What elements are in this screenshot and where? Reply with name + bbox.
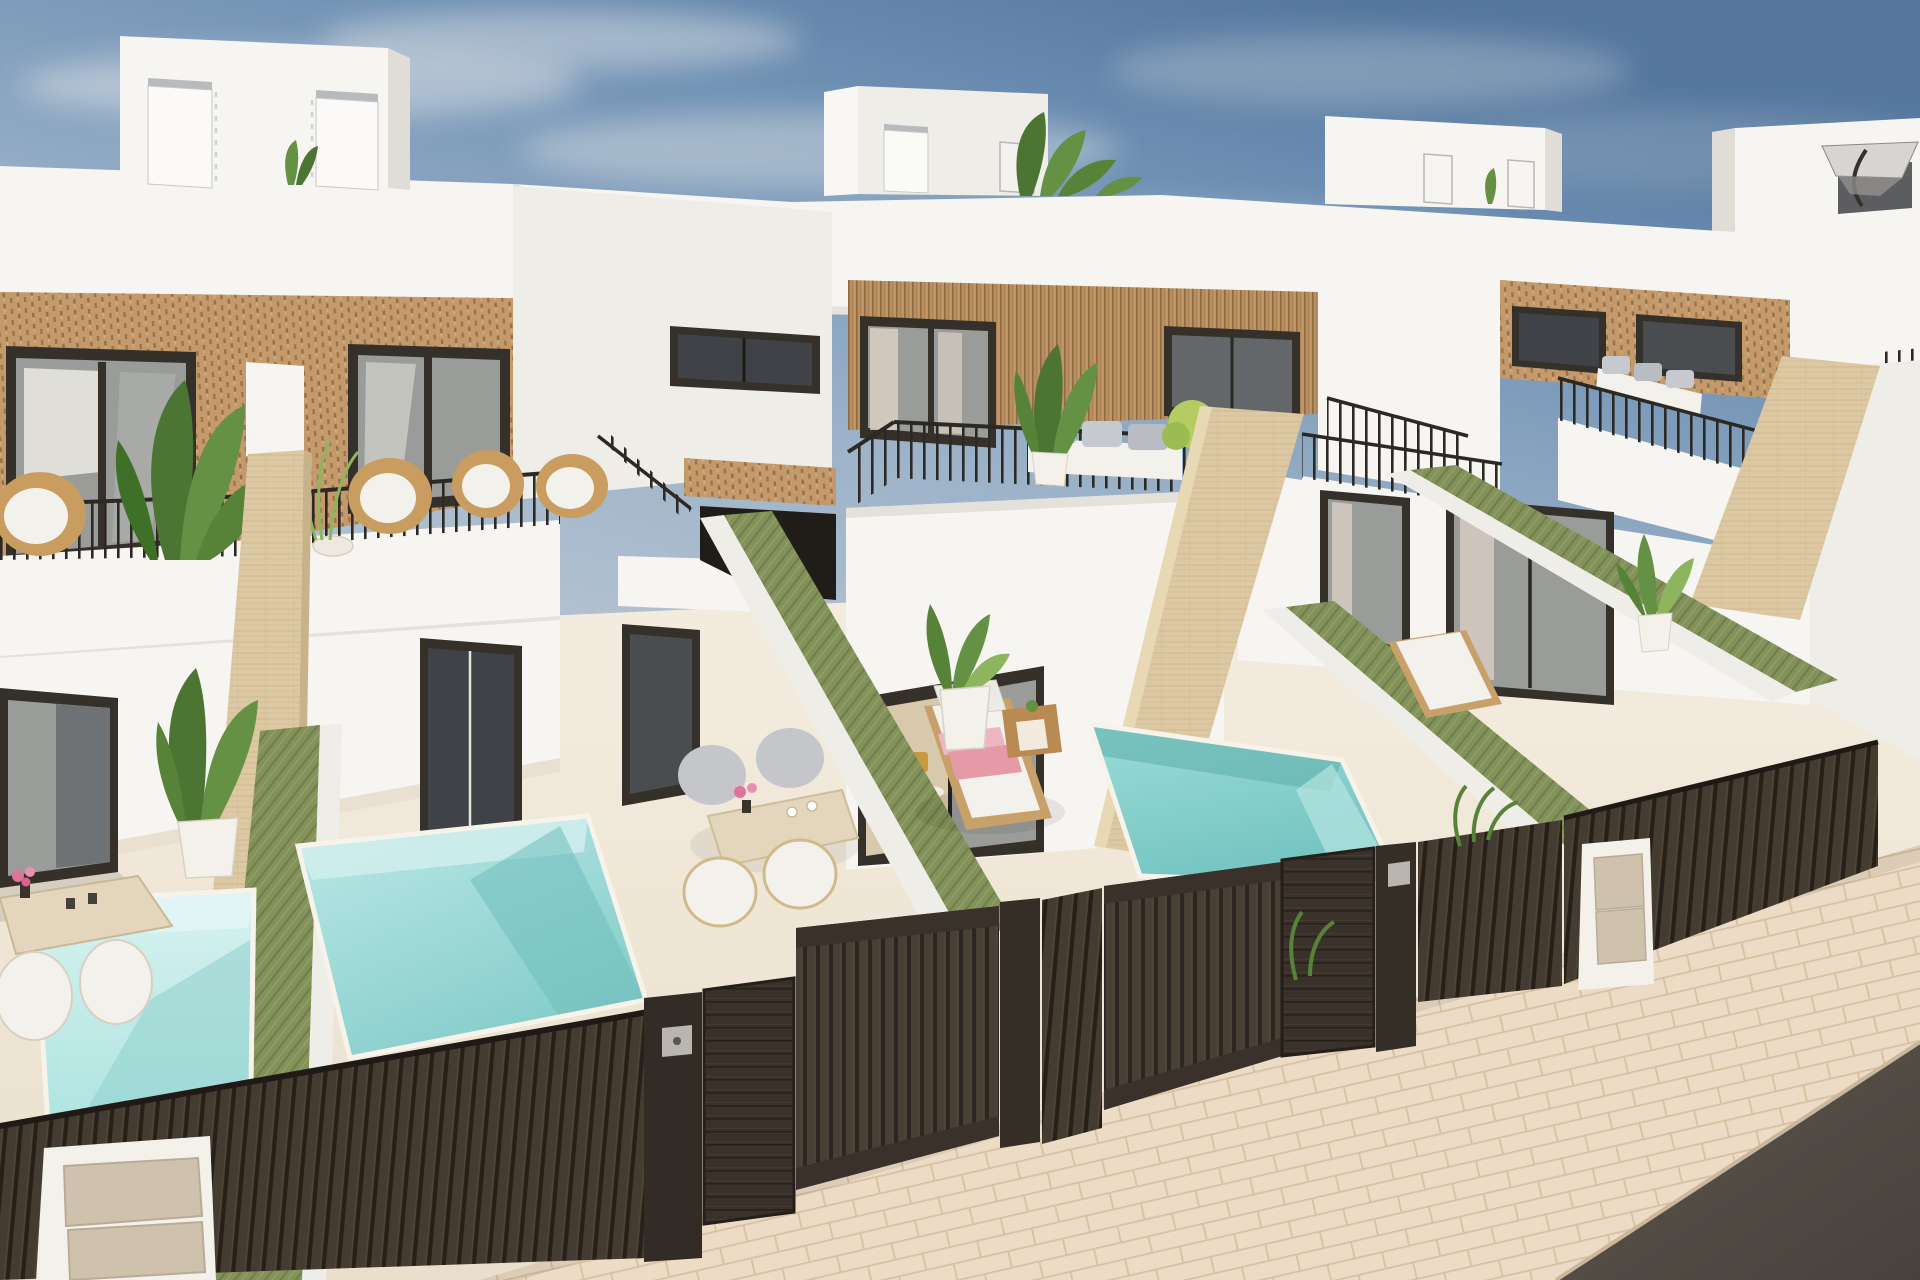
meter-panel [1594,854,1644,910]
dining-chair [0,952,72,1040]
chair-cushion [360,473,416,523]
cup [787,807,797,817]
street-fence [1418,820,1562,1002]
door-leaf [148,86,212,188]
cup [807,801,817,811]
window [670,326,820,394]
utility-post [36,1136,216,1280]
cloud [1110,34,1630,106]
curtain [870,328,898,430]
wicker-chair [452,450,524,518]
sliding-glass-door [420,638,522,854]
shrub [1162,422,1190,450]
wicker-chair [536,454,608,518]
plant-pot [940,686,990,750]
chair-cushion [462,464,510,508]
dining-chair [764,840,836,908]
gate-pillar [1376,842,1416,1052]
door-leaf [316,98,378,190]
wicker-chair [348,458,432,534]
sofa-cushion [1128,424,1168,450]
dining-chair [684,858,756,926]
window-mullion [928,328,934,434]
mini-plant [1026,700,1038,712]
parasol-canopy [1822,142,1918,178]
table-notch [1016,719,1048,751]
plant-pot [1032,452,1068,486]
sofa-cushion [1082,421,1122,447]
tower-door [884,130,928,193]
chair-cushion [546,467,594,509]
tower-side [1545,128,1562,212]
pedestrian-gate [704,978,794,1224]
vase [742,800,751,813]
gate-pillar [644,992,702,1262]
roof-stair-tower-3 [1325,116,1562,212]
door-glass-dark [56,704,110,868]
tower-window [1424,154,1452,204]
sofa-cushion [1602,356,1630,374]
meter-panel [68,1222,205,1280]
gate-keypad [1388,861,1410,887]
roof-stair-tower-1 [120,36,410,190]
sofa-cushion [1666,370,1694,388]
meter-panel [1596,908,1646,964]
cup [66,898,75,909]
keypad-button [673,1037,681,1045]
curtain [938,332,962,434]
flower [747,783,757,793]
flower [734,786,746,798]
tower-door [312,90,378,190]
utility-post [1578,838,1654,990]
render-image [0,0,1920,1280]
tower-side-bright [824,86,858,196]
gate-pillar [1000,898,1040,1148]
scene-svg [0,0,1920,1280]
dining-chair [756,728,824,788]
round-table [313,536,353,556]
window-glass [1519,313,1599,367]
plant-pot [1638,613,1672,652]
flower [22,878,31,887]
plant-pot [178,818,238,878]
chair-cushion [4,488,68,544]
window [1512,306,1606,374]
interior-wall [24,368,100,480]
tower-window [1508,160,1534,208]
cup [88,893,97,904]
flower [25,867,35,877]
tower-door [148,78,216,188]
meter-panel [64,1158,202,1226]
sofa-cushion [1634,363,1662,381]
dining-chair [80,940,152,1024]
pedestrian-gate [1282,848,1374,1056]
wall-nib [246,362,304,460]
tower-side [388,48,410,190]
street-fence [1042,888,1102,1144]
